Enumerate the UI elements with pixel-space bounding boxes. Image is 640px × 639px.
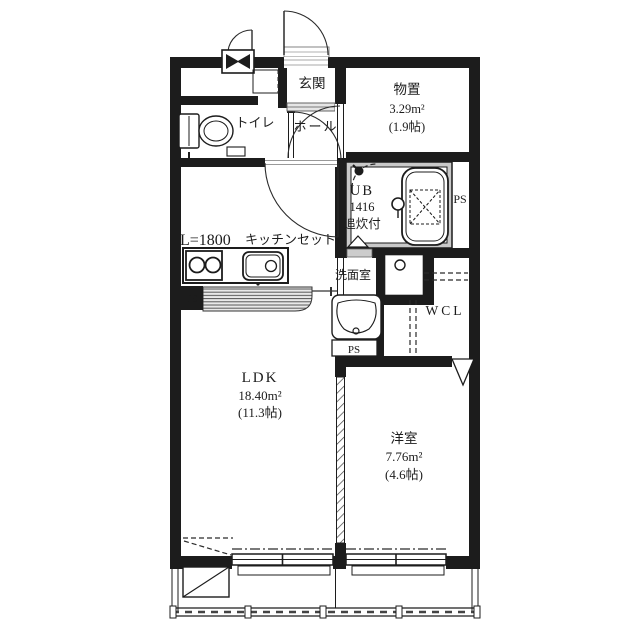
hall-label: ホール	[293, 119, 338, 134]
western-room-label: 洋室	[391, 430, 418, 446]
floor-plan-svg: PS	[0, 0, 640, 639]
genkan-label: 玄関	[299, 75, 326, 91]
balcony-railing	[170, 606, 480, 618]
storage-label: 物置	[394, 82, 421, 97]
ldk-area-tatami: (11.3帖)	[238, 405, 282, 420]
shoe-cabinet	[253, 70, 278, 93]
pipe-space-kitchen: PS	[181, 286, 203, 310]
bathtub	[402, 168, 448, 245]
ldk-door-arc	[265, 163, 338, 237]
unit-bath-size: 1416	[350, 200, 375, 214]
eaves-dashed-lines	[183, 538, 233, 555]
ldk-partition-sliding-door	[337, 377, 345, 543]
storage-area-m2: 3.29m²	[389, 102, 425, 116]
ac-unit-box	[183, 567, 229, 597]
western-room-area-m2: 7.76m²	[386, 449, 423, 464]
kitchen-length-label: L=1800	[180, 232, 231, 249]
ldk-label: LDK	[242, 370, 279, 386]
washroom-label: 洗面室	[335, 267, 371, 282]
bedroom-window	[346, 549, 446, 575]
western-room-area-tatami: (4.6帖)	[385, 467, 423, 482]
pipe-space-kitchen-label: PS	[186, 294, 198, 305]
kitchen-counter	[203, 287, 337, 311]
washing-machine-pan	[384, 254, 424, 296]
wcl-label: WCL	[426, 303, 465, 318]
unit-bath-label: UB	[350, 183, 374, 199]
pipe-space-washroom: PS	[332, 340, 377, 356]
pipe-space-bath-label: PS	[453, 192, 466, 206]
kitchen-set-label: キッチンセット	[245, 232, 336, 247]
storage-area-tatami: (1.9帖)	[389, 119, 425, 134]
unit-bath-feature: 追炊付	[343, 216, 381, 231]
washbasin	[332, 295, 381, 339]
toilet-label: トイレ	[235, 115, 274, 130]
pipe-space-washroom-label: PS	[348, 344, 360, 356]
kitchen-unit	[183, 248, 288, 286]
ldk-area-m2: 18.40m²	[238, 388, 281, 403]
ldk-window	[232, 549, 333, 575]
meter-box	[222, 50, 254, 73]
floor-plan-image: PS	[0, 0, 640, 639]
meter-box-door-arc	[228, 30, 252, 51]
